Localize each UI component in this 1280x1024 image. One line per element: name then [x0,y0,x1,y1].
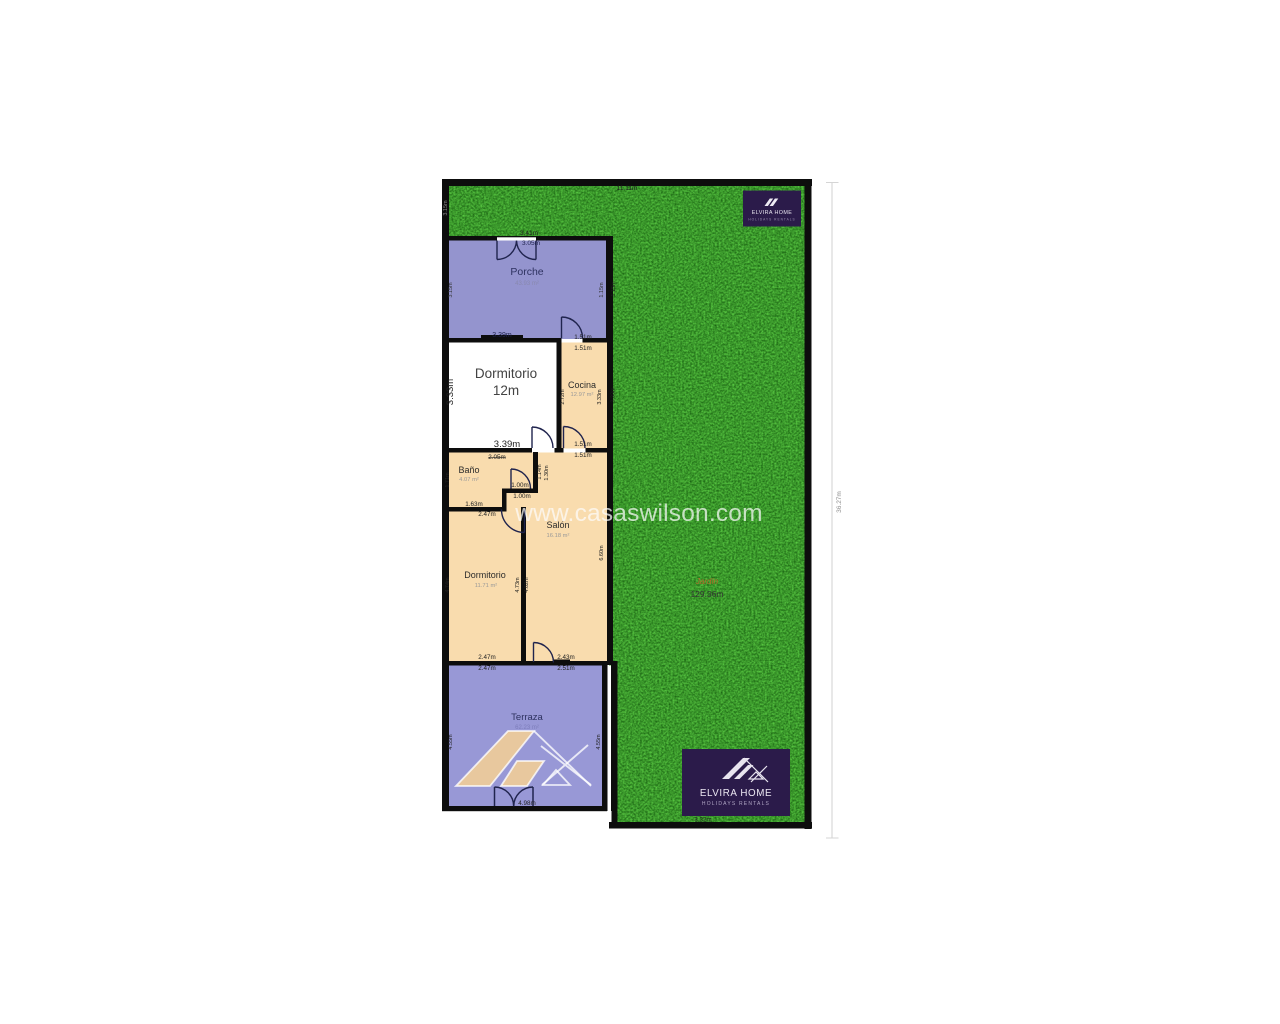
svg-text:1.51m: 1.51m [574,441,592,448]
svg-text:3.33m: 3.33m [611,387,617,403]
svg-text:Cocina: Cocina [568,380,596,390]
svg-text:4.55m: 4.55m [596,734,602,750]
svg-text:Dormitorio: Dormitorio [475,366,537,381]
svg-text:1.00m: 1.00m [513,493,531,500]
svg-text:12.97 m²: 12.97 m² [571,392,594,398]
svg-text:36.27m: 36.27m [836,491,843,513]
svg-text:4.74m: 4.74m [445,577,451,593]
svg-text:4.98m: 4.98m [518,800,536,807]
svg-text:12m: 12m [493,383,519,398]
svg-text:4.73m: 4.73m [515,577,521,593]
svg-text:Porche: Porche [510,266,543,278]
svg-text:2.47m: 2.47m [478,654,496,661]
svg-text:Baño: Baño [458,465,479,475]
svg-text:ELVIRA HOME: ELVIRA HOME [752,210,793,216]
svg-text:Terraza: Terraza [511,712,543,723]
svg-text:3.33m: 3.33m [597,389,603,405]
svg-text:ELVIRA HOME: ELVIRA HOME [700,788,772,799]
svg-text:3.32m: 3.32m [694,817,712,824]
svg-text:2.43m: 2.43m [557,654,575,661]
svg-text:1.51m: 1.51m [574,334,592,341]
svg-text:2.51m: 2.51m [557,665,575,672]
svg-text:3.33m: 3.33m [445,379,456,405]
svg-text:1.51m: 1.51m [574,452,592,459]
svg-text:2.47m: 2.47m [478,665,496,672]
svg-text:11.11m: 11.11m [617,185,638,192]
svg-text:1.30m: 1.30m [544,465,550,481]
svg-text:4.07 m²: 4.07 m² [459,477,479,483]
svg-text:62.23 m²: 62.23 m² [515,725,539,731]
svg-text:2.72m: 2.72m [560,389,566,405]
svg-text:43.93 m²: 43.93 m² [515,281,539,287]
svg-text:1.14m: 1.14m [537,464,543,480]
svg-text:4.55m: 4.55m [448,734,454,750]
svg-text:11.71 m²: 11.71 m² [475,583,498,589]
svg-text:1.00m: 1.00m [511,482,529,489]
svg-text:3.41m: 3.41m [520,230,538,237]
svg-text:4.62m: 4.62m [524,577,530,593]
svg-text:16.18 m²: 16.18 m² [547,533,570,539]
svg-text:1.15m: 1.15m [611,281,617,297]
svg-text:6.60m: 6.60m [599,545,605,561]
svg-text:1.71m: 1.71m [445,472,451,488]
svg-text:HOLIDAYS RENTALS: HOLIDAYS RENTALS [748,218,795,222]
svg-text:Jardín: Jardín [695,577,719,586]
svg-text:HOLIDAYS RENTALS: HOLIDAYS RENTALS [702,801,770,807]
svg-text:1.63m: 1.63m [465,501,483,508]
svg-text:3.39m: 3.39m [492,332,512,339]
svg-text:www.casaswilson.com: www.casaswilson.com [514,500,763,527]
svg-text:3.05m: 3.05m [522,240,540,247]
svg-text:2.47m: 2.47m [478,511,496,518]
svg-text:Dormitorio: Dormitorio [464,570,506,580]
svg-text:3.15m: 3.15m [443,200,449,216]
svg-text:1.51m: 1.51m [574,345,592,352]
svg-text:1.15m: 1.15m [599,282,605,298]
svg-text:3.39m: 3.39m [494,439,520,450]
svg-text:3.15m: 3.15m [448,282,454,298]
svg-text:2.05m: 2.05m [488,454,506,461]
svg-text:129.36m: 129.36m [690,589,723,599]
